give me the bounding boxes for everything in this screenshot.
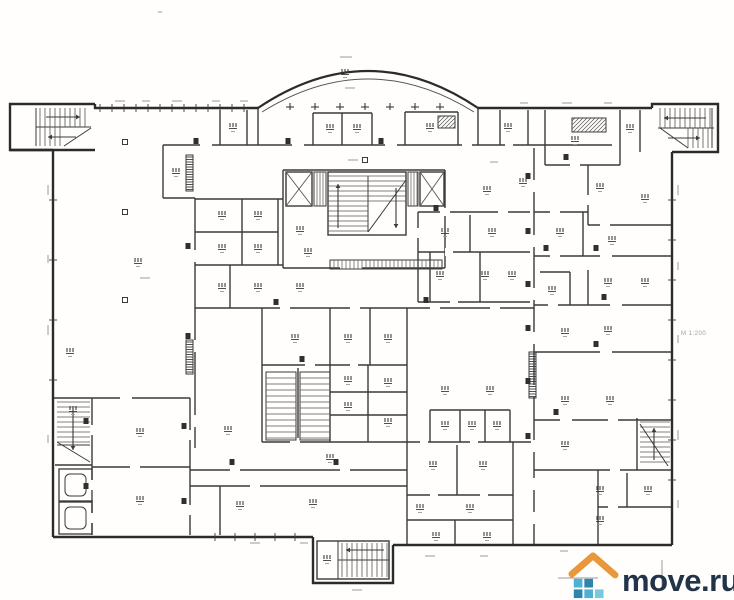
plan-rect [526, 173, 531, 179]
plan-rect [602, 294, 607, 300]
plan-rect [531, 512, 537, 524]
plan-rect [610, 301, 622, 309]
plan-rect [182, 423, 187, 429]
floor-plan-drawing [0, 0, 734, 600]
plan-rect [379, 138, 384, 144]
plan-rect [480, 491, 488, 499]
plan-rect [250, 482, 260, 490]
plan-rect [526, 281, 531, 287]
plan-rect [531, 440, 537, 452]
plan-rect [350, 361, 358, 369]
plan-rect [192, 250, 198, 262]
plan-rect [490, 304, 500, 312]
plan-rect [200, 141, 212, 149]
plan-rect [526, 325, 531, 331]
plan-rect [89, 480, 93, 490]
plan-rect [415, 228, 421, 238]
plan-rect [305, 361, 315, 369]
plan-rect [608, 503, 618, 511]
plan-rect [340, 264, 362, 271]
plan-rect [186, 333, 191, 339]
plan-rect [89, 513, 93, 523]
plan-rect [280, 304, 290, 312]
plan-rect [89, 425, 95, 435]
plan-rect [470, 438, 478, 446]
plan-rect [84, 418, 89, 424]
plan-rect [610, 466, 620, 474]
move-ru-watermark: move.ru [566, 546, 734, 600]
plan-rect [564, 154, 569, 160]
plan-rect [194, 138, 199, 144]
plan-rect [594, 245, 599, 251]
watermark-text: move.ru [622, 565, 734, 596]
plan-rect [340, 466, 350, 474]
plan-rect [230, 466, 240, 474]
plan-rect [585, 195, 591, 205]
plan-rect [531, 235, 537, 247]
plan-rect [350, 304, 360, 312]
plan-rect [548, 301, 558, 309]
house-icon [566, 550, 620, 600]
plan-rect [430, 491, 438, 499]
plan-rect [531, 332, 537, 344]
plan-rect [560, 416, 572, 424]
plan-rect [440, 208, 450, 216]
plan-rect [120, 394, 132, 402]
plan-rect [505, 141, 513, 149]
plan-rect [594, 341, 599, 347]
plan-rect [600, 221, 610, 229]
plan-rect [420, 438, 428, 446]
plan-rect [445, 248, 453, 256]
plan-rect [187, 505, 193, 515]
plan-rect [450, 298, 458, 306]
plan-rect [182, 498, 187, 504]
scale-note: М 1:200 [681, 331, 706, 337]
plan-rect [290, 438, 300, 446]
plan-rect [84, 483, 89, 489]
scanned-floorplan-page: ПЛАН 5 ЭТАЖА М 1:200 move.ru [0, 0, 734, 600]
plan-rect [334, 459, 339, 465]
plan-rect [130, 463, 140, 471]
plan-rect [300, 356, 305, 362]
plan-rect [608, 416, 618, 424]
plan-rect [498, 208, 508, 216]
plan-rect [526, 228, 531, 234]
plan-rect [385, 141, 397, 149]
plan-rect [430, 304, 440, 312]
plan-rect [544, 245, 549, 251]
plan-rect [424, 297, 429, 303]
plan-rect [570, 161, 580, 169]
plan-rect [526, 433, 531, 439]
plan-rect [600, 252, 612, 260]
plan-rect [531, 478, 537, 490]
plan-rect [186, 243, 191, 249]
plan-rect [230, 459, 235, 465]
plan-rect [550, 252, 560, 260]
plan-rect [192, 415, 198, 427]
plan-rect [292, 141, 304, 149]
plan-rect [286, 138, 291, 144]
plan-rect [554, 409, 559, 415]
plan-rect [531, 180, 537, 192]
plan-rect [550, 208, 560, 216]
plan-rect [462, 141, 472, 149]
plan-rect [526, 378, 531, 384]
plan-rect [434, 205, 439, 211]
plan-rect [531, 288, 537, 300]
plan-rect [187, 430, 193, 440]
plan-rect [0, 0, 734, 600]
plan-rect [274, 299, 279, 305]
plan-rect [600, 348, 612, 356]
